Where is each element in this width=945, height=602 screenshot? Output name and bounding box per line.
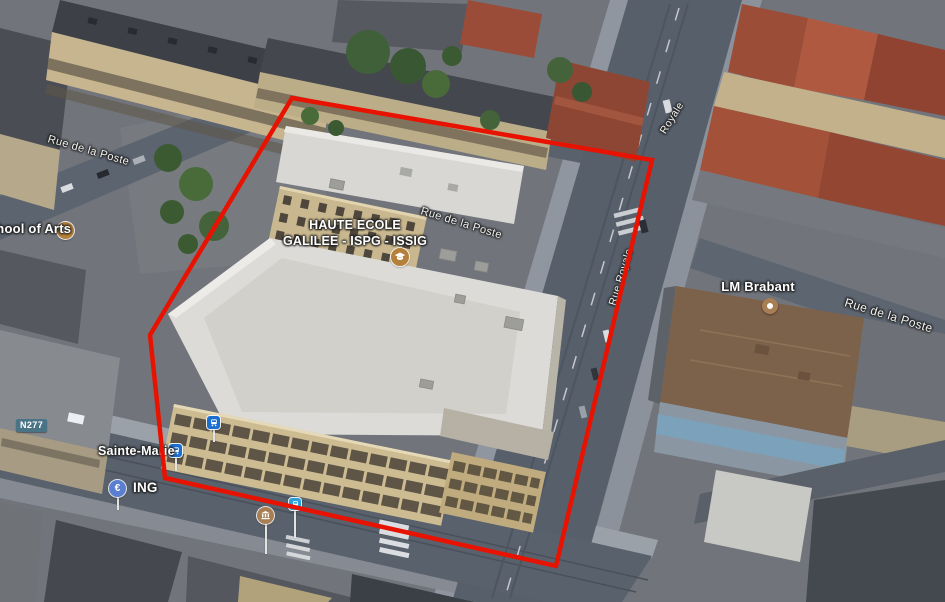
transit-stop-pole — [294, 510, 296, 538]
poi-label-ing[interactable]: ING — [133, 480, 158, 495]
poi-label-haute-ecole[interactable]: HAUTE ECOLE GALILEE - ISPG - ISSIG — [280, 217, 430, 249]
tram-stop-pole — [213, 429, 215, 442]
tram-icon[interactable] — [207, 416, 220, 429]
euro-symbol: € — [115, 483, 121, 494]
bank-pin-stem — [265, 524, 267, 554]
transit-label-sainte-marie[interactable]: Sainte-Marie — [98, 444, 175, 458]
haute-ecole-line2: GALILEE - ISPG - ISSIG — [280, 233, 430, 249]
poi-label-school-of-arts[interactable]: School of Arts — [0, 221, 71, 236]
map-canvas[interactable]: € School of Arts HAUTE ECOLE GALILEE - I… — [0, 0, 945, 602]
poi-dot-icon[interactable] — [762, 298, 778, 314]
euro-pin-icon[interactable]: € — [109, 480, 126, 497]
haute-ecole-line1: HAUTE ECOLE — [280, 217, 430, 233]
bus-icon[interactable] — [289, 498, 301, 510]
sainte-marie-stop-pole — [175, 457, 177, 471]
graduation-cap-icon[interactable] — [391, 248, 409, 266]
route-badge-n277: N277 — [16, 419, 47, 432]
satellite-imagery — [0, 0, 945, 602]
classical-building-pin-icon[interactable] — [257, 507, 274, 524]
poi-label-lm-brabant[interactable]: LM Brabant — [710, 279, 806, 294]
ing-pin-stem — [117, 497, 119, 510]
